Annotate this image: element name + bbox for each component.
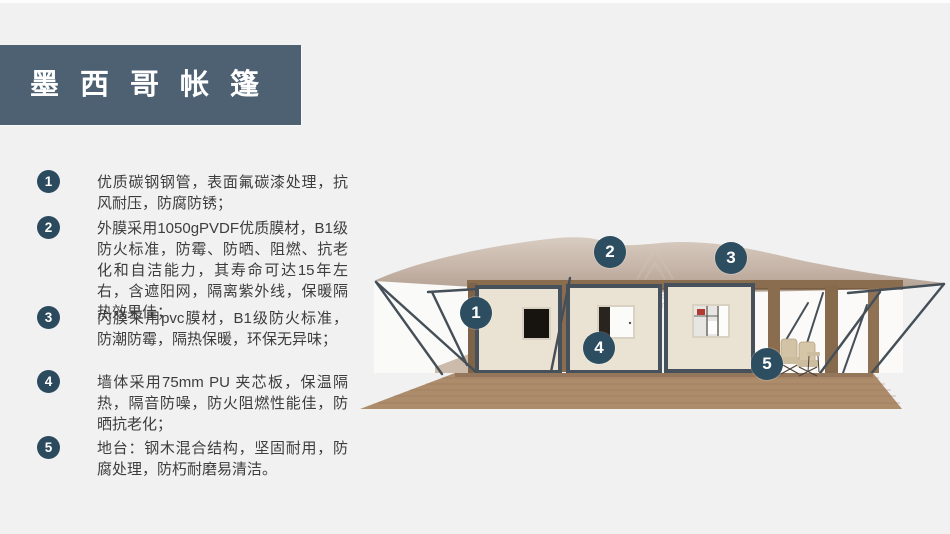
feature-text-5: 地台：钢木混合结构，坚固耐用，防腐处理，防朽耐磨易清洁。 xyxy=(97,438,348,480)
feature-text-4: 墙体采用75mm PU 夹芯板，保温隔热，隔音防噪，防火阻燃性能佳，防晒抗老化； xyxy=(97,372,348,435)
feature-item-1: 1 优质碳钢钢管，表面氟碳漆处理，抗风耐压，防腐防锈； xyxy=(28,172,348,214)
top-edge-strip xyxy=(0,0,950,3)
side-table-top xyxy=(807,352,820,356)
page-title: 墨西哥帐篷 xyxy=(0,45,301,125)
left-opening-background xyxy=(374,281,468,373)
window-1 xyxy=(524,309,549,338)
feature-item-4: 4 墙体采用75mm PU 夹芯板，保温隔热，隔音防噪，防火阻燃性能佳，防晒抗老… xyxy=(28,372,348,435)
porch-post-2 xyxy=(825,285,838,373)
deck xyxy=(360,373,902,409)
tent-illustration: 雪利篷房 XUELI TENT xyxy=(355,215,950,415)
feature-text-3: 内膜采用pvc膜材，B1级防火标准，防潮防霉，隔热保暖，环保无异味； xyxy=(97,308,348,350)
feature-number-badge-3: 3 xyxy=(37,306,60,329)
callout-3: 3 xyxy=(715,242,747,274)
wall-modules xyxy=(477,285,753,372)
callout-5: 5 xyxy=(751,348,783,380)
tent-figure: 雪利篷房 XUELI TENT xyxy=(355,215,950,415)
title-banner: 墨西哥帐篷 xyxy=(0,45,301,125)
callout-4: 4 xyxy=(583,332,615,364)
feature-number-badge-1: 1 xyxy=(37,170,60,193)
feature-item-5: 5 地台：钢木混合结构，坚固耐用，防腐处理，防朽耐磨易清洁。 xyxy=(28,438,348,480)
deck-shadow xyxy=(455,373,873,377)
callout-1: 1 xyxy=(460,297,492,329)
feature-text-1: 优质碳钢钢管，表面氟碳漆处理，抗风耐压，防腐防锈； xyxy=(97,172,348,214)
window-3-white-item xyxy=(708,321,717,334)
feature-number-badge-5: 5 xyxy=(37,436,60,459)
window-3-bright-strip xyxy=(719,306,728,336)
feature-number-badge-4: 4 xyxy=(37,370,60,393)
callout-2: 2 xyxy=(594,236,626,268)
feature-item-3: 3 内膜采用pvc膜材，B1级防火标准，防潮防霉，隔热保暖，环保无异味； xyxy=(28,308,348,350)
slide: 墨西哥帐篷 1 优质碳钢钢管，表面氟碳漆处理，抗风耐压，防腐防锈； 2 外膜采用… xyxy=(0,0,950,534)
window-2-handle xyxy=(629,322,631,324)
feature-number-badge-2: 2 xyxy=(37,216,60,239)
window-3-red-box xyxy=(697,309,705,315)
